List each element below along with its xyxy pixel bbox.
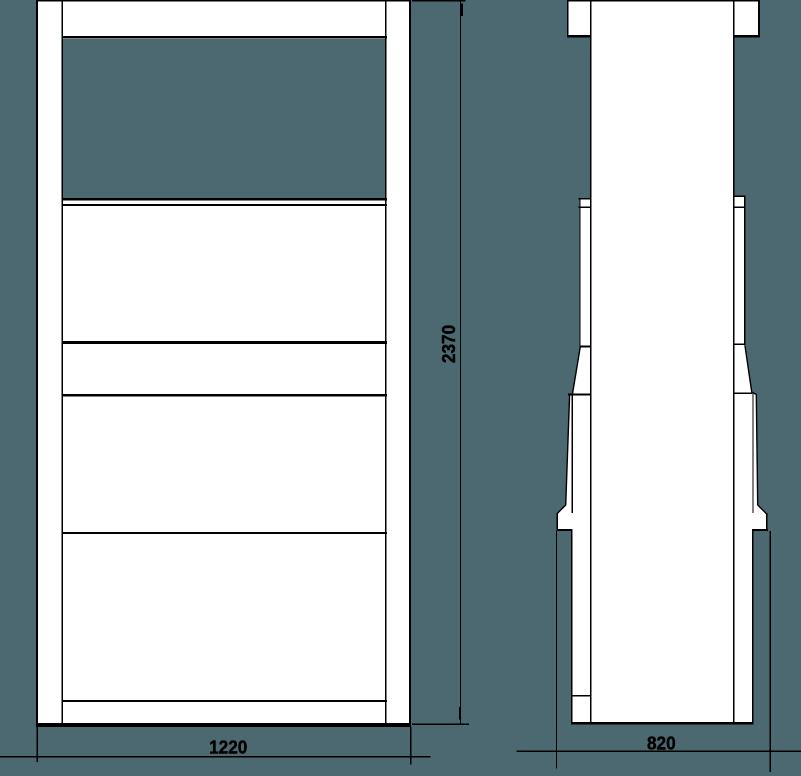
svg-text:2370: 2370 — [438, 325, 459, 363]
svg-text:820: 820 — [647, 733, 676, 754]
svg-text:1220: 1220 — [209, 737, 247, 758]
